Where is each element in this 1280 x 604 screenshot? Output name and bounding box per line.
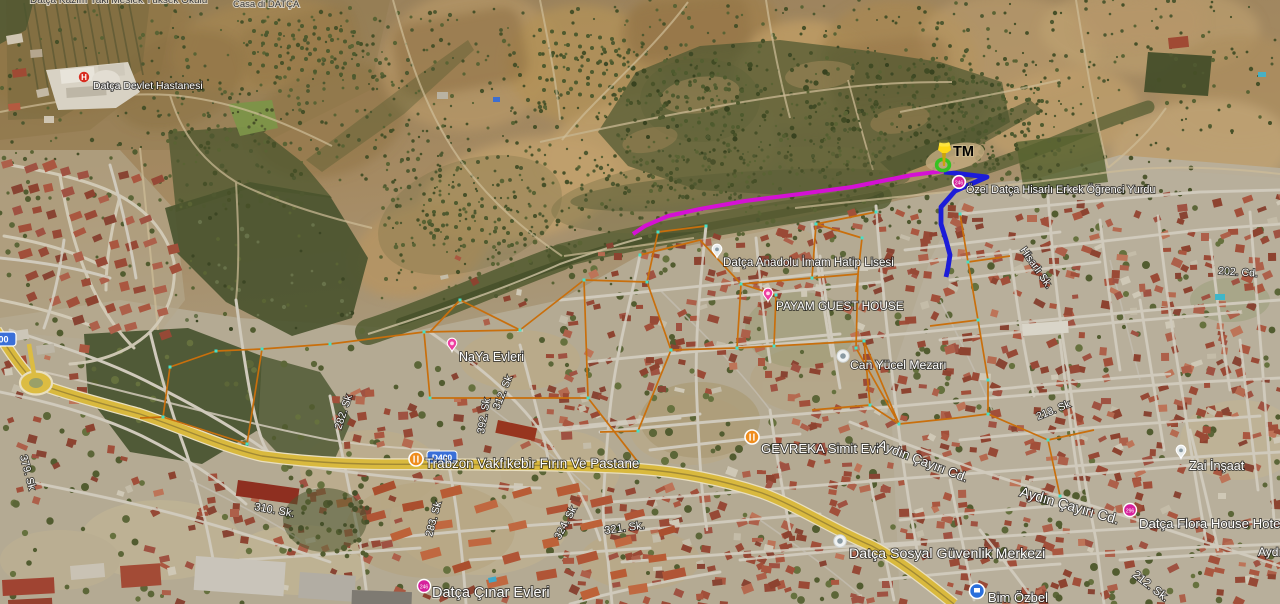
svg-text:GEVREKA Simit Evi: GEVREKA Simit Evi <box>761 441 879 456</box>
svg-text:Datça Kazım Yaki Meslek Yüksek: Datça Kazım Yaki Meslek Yüksek Okulu <box>30 0 207 6</box>
svg-text:Datça Flora House Hote: Datça Flora House Hote <box>1139 516 1280 531</box>
svg-text:TM: TM <box>953 144 974 160</box>
svg-text:Datça Sosyal Güvenlik Merkezi: Datça Sosyal Güvenlik Merkezi <box>849 546 1045 562</box>
svg-text:296: 296 <box>1126 509 1135 515</box>
svg-text:NaYa Evleri: NaYa Evleri <box>459 350 524 364</box>
svg-text:Can Yücel Mezarı: Can Yücel Mezarı <box>850 358 947 372</box>
svg-text:PAYAM GUEST HOUSE: PAYAM GUEST HOUSE <box>776 299 904 313</box>
svg-text:Özel Datça Hisarlı Erkek Öğren: Özel Datça Hisarlı Erkek Öğrenci Yurdu <box>966 184 1155 196</box>
svg-text:Aydı: Aydı <box>1258 545 1280 559</box>
svg-text:246: 246 <box>420 585 429 591</box>
svg-text:400: 400 <box>0 335 9 345</box>
svg-text:Casa di DATÇA: Casa di DATÇA <box>233 0 300 10</box>
svg-text:Datça Devlet Hastanesi: Datça Devlet Hastanesi <box>93 80 203 92</box>
svg-text:246: 246 <box>955 181 964 187</box>
svg-text:Datça Anadolu İmam Hatip Lises: Datça Anadolu İmam Hatip Lisesi <box>723 256 894 269</box>
svg-text:Datça Çınar Evleri: Datça Çınar Evleri <box>432 585 550 601</box>
svg-text:Trabzon Vakfıkebir Fırın Ve Pa: Trabzon Vakfıkebir Fırın Ve Pastane <box>425 456 639 471</box>
svg-text:H: H <box>81 73 87 82</box>
svg-text:Zai İnşaat: Zai İnşaat <box>1189 459 1245 473</box>
svg-text:Bim Özbel: Bim Özbel <box>988 590 1048 604</box>
